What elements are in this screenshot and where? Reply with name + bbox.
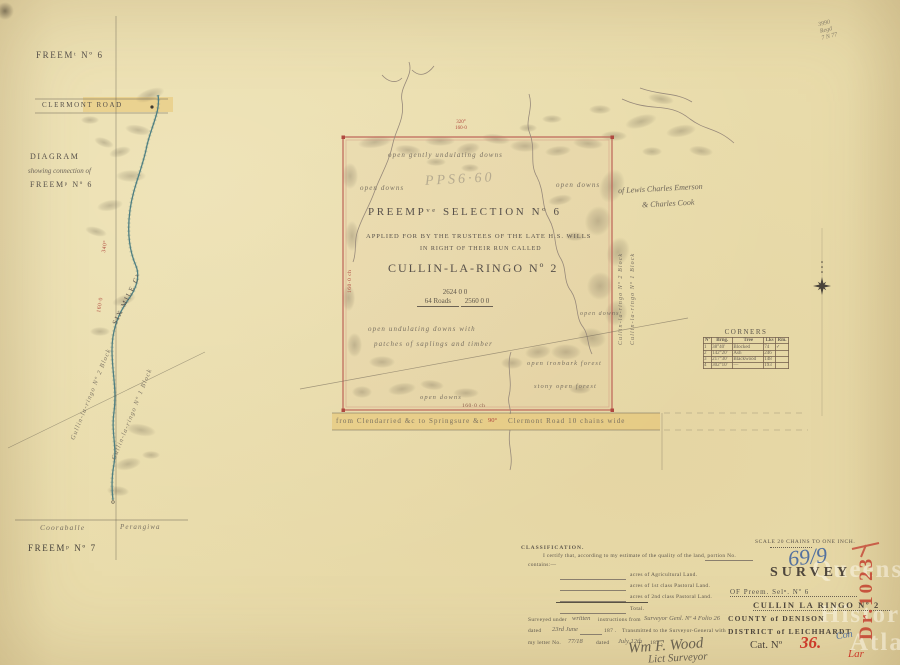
road-band-angle: 90° — [488, 417, 497, 424]
terrain-patches: patches of saplings and timber — [374, 340, 493, 348]
terrain-open-gently: open gently undulating downs — [388, 151, 503, 159]
cooraballe-label: Cooraballe — [40, 523, 85, 532]
road-band-right-text: Clermont Road 10 chains wide — [508, 417, 626, 425]
field1-line — [560, 578, 626, 580]
terrain-stony: stony open forest — [534, 383, 597, 390]
freemp-no6-label: Freemᵖ Nº 6 — [30, 180, 93, 189]
area-roads: 64 Roads — [417, 297, 459, 307]
diagram-subtitle: showing connection of — [28, 167, 91, 175]
hand-rule — [556, 602, 648, 603]
survey-county: COUNTY of DENISON — [728, 614, 825, 623]
corners-title: Corners — [703, 328, 789, 336]
terrain-ironbark: open ironbark forest — [527, 360, 602, 367]
archive-stamp: Dr.1023 — [856, 556, 878, 640]
diagram-title: Diagram — [30, 152, 79, 161]
dated-hw: 23rd June — [552, 626, 578, 633]
terrain-open-downs-s: open downs — [420, 394, 462, 401]
corners-row: 4 302°10' — 193 — [704, 363, 789, 369]
lar-annotation: Lar — [848, 648, 864, 660]
area-computation: 2624 0 0 64 Roads 2560 0 0 — [407, 288, 503, 307]
road-dot — [150, 105, 153, 108]
classification-contains: contains:— — [528, 562, 556, 568]
clermont-road-label-left: Clermont Road — [42, 101, 123, 109]
field3-label: acres of 2nd class Pastoral Land. — [630, 594, 712, 600]
corners-row: 1 38°40' Blocked 74 ✓ — [704, 344, 789, 351]
freemt-no6-label: Freemᵗ Nº 6 — [36, 50, 104, 60]
diagonal-survey-line-left — [8, 352, 205, 448]
surveyed-printed-1: Surveyed under — [528, 617, 567, 623]
selection-subtitle-2: in right of their run called — [420, 246, 542, 252]
road-band-left-text: from Clendarried &c to Springsure &c — [336, 417, 484, 425]
total-label: Total. — [630, 606, 644, 612]
dated-printed: dated — [528, 628, 541, 634]
letter-hw: 77/18 — [568, 638, 583, 645]
north-star-icon — [813, 277, 831, 295]
transmitted: Transmitted to the Surveyor-General with — [622, 628, 726, 634]
top-side-measure: 320°160·0 — [446, 120, 476, 132]
cat-label: Cat. Nº — [750, 639, 782, 651]
dated-line — [580, 633, 602, 635]
area-net: 2560 0 0 — [461, 297, 494, 307]
surveyor-signature-title: Lict Surveyor — [648, 650, 708, 665]
edge-block1-label: Cullin-la-ringo Nº 1 Block — [630, 253, 636, 345]
perangiwa-label: Perangiwa — [120, 523, 161, 531]
cat-number: 36. — [800, 633, 821, 653]
terrain-undulating: open undulating downs with — [368, 325, 476, 333]
field2-label: acres of 1st class Pastoral Land. — [630, 583, 710, 589]
area-total: 2624 0 0 — [407, 288, 503, 297]
certify-blank-line — [705, 559, 753, 561]
dated2-printed: dated — [596, 640, 609, 646]
left-side-measure: 160·0 ch — [347, 270, 353, 293]
survey-of-line: OF Preem. Selⁿ. Nº 6 — [730, 588, 857, 597]
year1: 187 . — [604, 628, 617, 634]
survey-map-sheet: Freemᵗ Nº 6 Clermont Road Diagram showin… — [0, 0, 900, 665]
survey-district: DISTRICT of LEICHHARDT — [728, 627, 852, 636]
freemp-no7-label: Freemᵖ Nº 7 — [28, 543, 97, 553]
station-mark — [112, 501, 115, 504]
terrain-open-downs-ne: open downs — [556, 181, 600, 189]
edge-block2-label: Cullin-la-ringo Nº 2 Block — [618, 253, 624, 345]
surveyed-hw-1: written — [572, 615, 590, 622]
letter-printed: my letter No. — [528, 640, 561, 646]
terrain-open-downs-nw: open downs — [360, 184, 404, 192]
field2-line — [560, 589, 626, 591]
selection-subtitle-1: Applied for by the Trustees of the late … — [366, 233, 591, 240]
survey-title: SURVEY — [770, 565, 851, 581]
terrain-open-downs-e: open downs — [580, 311, 620, 317]
classification-heading: CLASSIFICATION. — [521, 545, 584, 551]
bottom-side-measure: 160·0 ch — [462, 403, 485, 409]
field1-label: acres of Agricultural Land. — [630, 572, 697, 578]
total-line — [560, 612, 626, 614]
run-name-title: Cullin-la-Ringo Nº 2 — [388, 261, 558, 276]
surveyed-hw-2: Surveyor Genl. Nº 4 Folio 26 — [644, 615, 720, 622]
surveyed-printed-2: instructions from — [598, 617, 641, 623]
selection-title: Preempᵛᵉ Selection Nº 6 — [368, 206, 562, 218]
corners-table: Corners Nº Brng. Tree Lks Rm. 1 38°40' B… — [703, 328, 789, 369]
